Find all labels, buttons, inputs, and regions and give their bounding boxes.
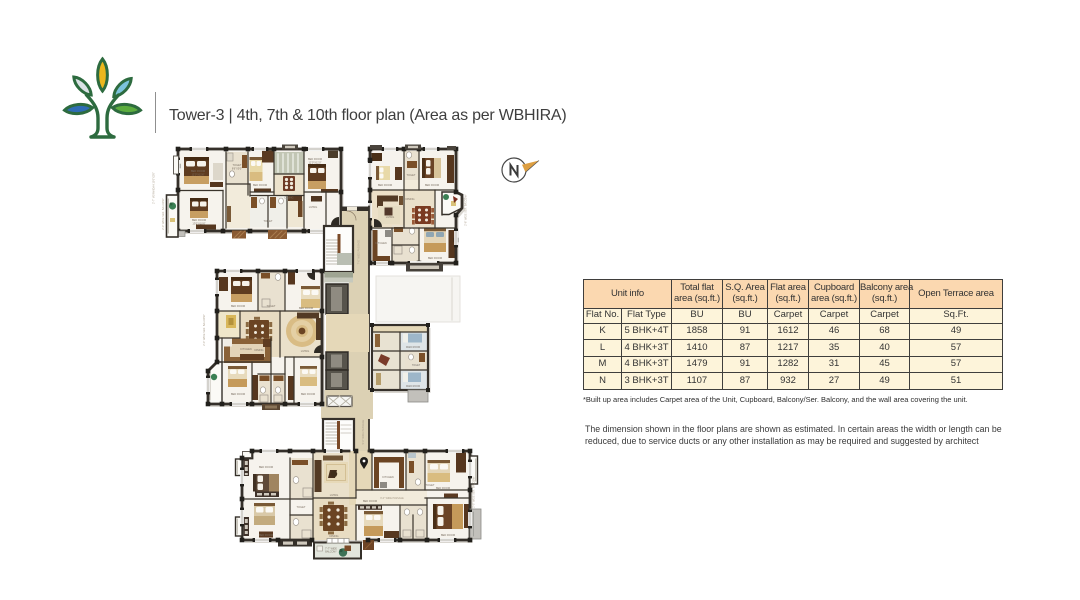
- svg-text:12'0"X11'0": 12'0"X11'0": [308, 160, 321, 164]
- svg-text:LIVING: LIVING: [301, 349, 310, 353]
- svg-text:DINING: DINING: [329, 534, 338, 538]
- svg-text:BED ROOM: BED ROOM: [436, 486, 450, 490]
- svg-text:BED ROOM: BED ROOM: [299, 306, 313, 310]
- svg-text:BED ROOM: BED ROOM: [428, 256, 442, 260]
- svg-text:BED ROOM: BED ROOM: [259, 533, 273, 537]
- svg-text:BED ROOM: BED ROOM: [192, 218, 206, 222]
- svg-text:2'-0" WIDE SER. BALCONY: 2'-0" WIDE SER. BALCONY: [473, 476, 476, 508]
- svg-text:9'-0" WIDE PASSAGE: 9'-0" WIDE PASSAGE: [380, 497, 404, 500]
- svg-text:TOILET: TOILET: [425, 483, 434, 487]
- svg-text:DINING: DINING: [405, 197, 414, 201]
- svg-text:DINING: DINING: [254, 348, 263, 352]
- svg-text:2'-0" WIDE SER. BALCONY: 2'-0" WIDE SER. BALCONY: [162, 198, 165, 230]
- svg-text:12'0"X11'6": 12'0"X11'6": [191, 172, 204, 176]
- svg-text:8'6"X5'0": 8'6"X5'0": [232, 166, 242, 170]
- svg-text:BED ROOM: BED ROOM: [378, 183, 392, 187]
- svg-text:MAID ROOM: MAID ROOM: [406, 346, 420, 349]
- svg-text:TOILET: TOILET: [266, 304, 275, 308]
- svg-text:BED ROOM: BED ROOM: [253, 183, 267, 187]
- svg-text:13'0"X10'6": 13'0"X10'6": [192, 221, 205, 225]
- svg-text:2'-0" WIDE SER. BALCONY: 2'-0" WIDE SER. BALCONY: [203, 314, 206, 346]
- svg-text:TOILET: TOILET: [232, 163, 241, 167]
- svg-text:KITCHEN: KITCHEN: [240, 347, 252, 351]
- svg-text:BED ROOM: BED ROOM: [363, 499, 377, 503]
- svg-text:BALCONY: BALCONY: [325, 551, 337, 554]
- svg-text:KITCHEN: KITCHEN: [382, 475, 394, 479]
- svg-text:KITCHEN: KITCHEN: [375, 241, 387, 245]
- svg-text:TOILET: TOILET: [296, 505, 305, 509]
- svg-text:BED ROOM: BED ROOM: [259, 465, 273, 469]
- svg-text:BED ROOM: BED ROOM: [301, 392, 315, 396]
- svg-text:BED ROOM: BED ROOM: [231, 392, 245, 396]
- svg-text:BED ROOM: BED ROOM: [441, 533, 455, 537]
- svg-text:2'-7" VERANDAH 10'0"X2'6": 2'-7" VERANDAH 10'0"X2'6": [153, 172, 156, 204]
- svg-text:TOILET: TOILET: [406, 173, 415, 177]
- svg-text:BED ROOM: BED ROOM: [308, 157, 322, 161]
- svg-text:7'-0" WIDE PASSAGE: 7'-0" WIDE PASSAGE: [358, 239, 361, 264]
- svg-text:BED ROOM: BED ROOM: [425, 183, 439, 187]
- svg-text:LIVING: LIVING: [309, 205, 318, 209]
- svg-text:TOILET: TOILET: [263, 219, 272, 223]
- svg-text:2'-6" WIDE SER. BALCONY: 2'-6" WIDE SER. BALCONY: [465, 194, 468, 226]
- svg-text:MAID ROOM: MAID ROOM: [406, 385, 420, 388]
- svg-text:9'-0" WIDE PASSAGE: 9'-0" WIDE PASSAGE: [362, 419, 365, 444]
- svg-text:BED ROOM: BED ROOM: [231, 304, 245, 308]
- svg-text:TOILET: TOILET: [412, 364, 421, 367]
- svg-text:BED ROOM: BED ROOM: [191, 169, 205, 173]
- svg-text:LIVING: LIVING: [330, 493, 339, 497]
- svg-text:DINING: DINING: [284, 196, 293, 200]
- svg-text:LIVING: LIVING: [386, 215, 395, 219]
